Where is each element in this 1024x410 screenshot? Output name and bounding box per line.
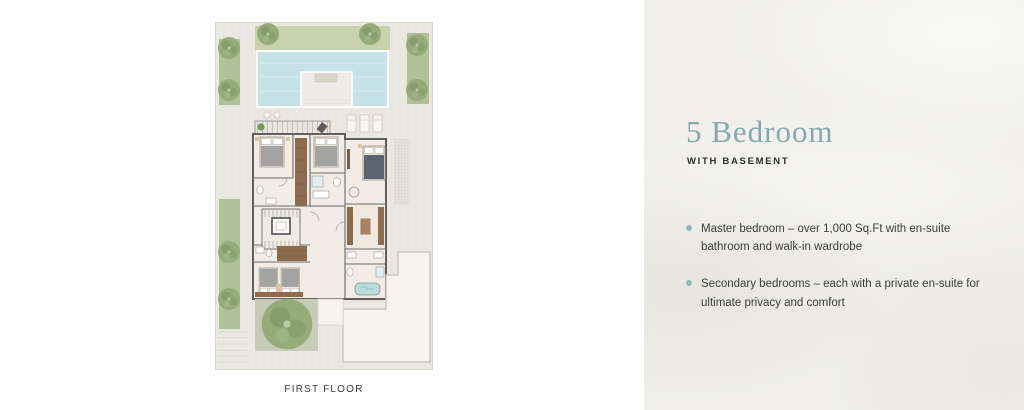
sun-loungers — [347, 115, 382, 132]
headboard-strip — [255, 292, 303, 297]
plant-icon — [257, 123, 264, 130]
bedroom-bed-icon — [314, 137, 338, 167]
planter-left-bottom — [218, 199, 240, 329]
cabinet-row — [277, 246, 307, 261]
bullet-dot-icon — [686, 225, 692, 231]
closet-island — [360, 218, 371, 235]
tree-icon — [406, 34, 428, 56]
list-item: Secondary bedrooms – each with a private… — [686, 275, 986, 312]
bullet-dot-icon — [686, 280, 692, 286]
house — [253, 134, 386, 299]
feature-text: Secondary bedrooms – each with a private… — [701, 275, 986, 312]
details-content: 5 Bedroom WITH BASEMENT Master bedroom –… — [644, 0, 1024, 312]
floor-caption: FIRST FLOOR — [215, 384, 433, 395]
list-item: Master bedroom – over 1,000 Sq.Ft with e… — [686, 220, 986, 257]
tree-icon — [218, 79, 240, 101]
pool-steps — [315, 74, 337, 82]
planter-right-top — [406, 33, 429, 104]
feature-text: Master bedroom – over 1,000 Sq.Ft with e… — [701, 220, 986, 257]
feature-list: Master bedroom – over 1,000 Sq.Ft with e… — [686, 220, 986, 313]
tree-icon — [257, 23, 279, 45]
tree-icon — [218, 241, 240, 263]
unit-subtitle: WITH BASEMENT — [687, 156, 994, 167]
planter-left-top — [218, 37, 240, 105]
floor-plan-illustration — [215, 22, 433, 370]
tree-icon — [218, 37, 240, 59]
tree-icon — [359, 23, 381, 45]
floor-plan-section: FIRST FLOOR — [0, 0, 644, 410]
walk-in-wardrobe — [346, 205, 385, 248]
bedroom-bed-icon — [260, 137, 284, 167]
swimming-pool — [257, 51, 388, 107]
master-bed-icon — [363, 146, 385, 180]
tree-icon — [218, 288, 240, 310]
bathtub-icon — [355, 283, 380, 295]
details-panel: 5 Bedroom WITH BASEMENT Master bedroom –… — [644, 0, 1024, 410]
tree-icon — [406, 79, 428, 101]
brochure-page: { "plan": { "caption": "FIRST FLOOR" }, … — [0, 0, 1024, 410]
balcony-strip — [255, 121, 330, 134]
stairs — [262, 209, 300, 249]
gridded-walkway — [394, 139, 410, 205]
large-tree-icon — [262, 299, 313, 350]
unit-title: 5 Bedroom — [686, 116, 994, 149]
lawn — [255, 23, 390, 50]
